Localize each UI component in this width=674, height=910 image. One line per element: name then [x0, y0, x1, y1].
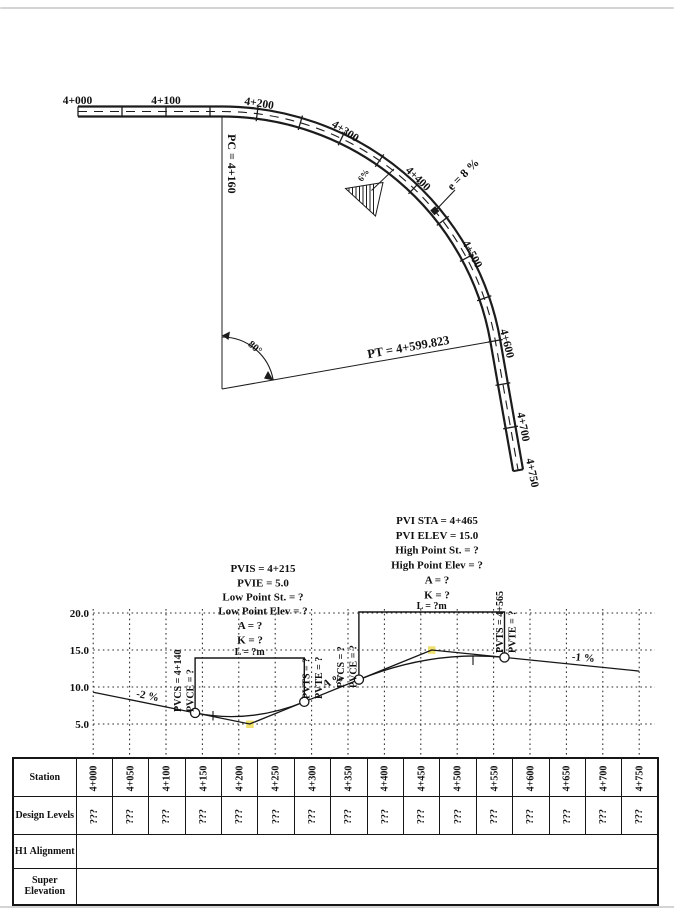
design-level-cell: ???: [404, 796, 440, 834]
road-outer-edge: [78, 107, 523, 470]
elev-tick-label: 15.0: [70, 645, 90, 657]
crest-note-line: A = ?: [425, 575, 450, 587]
station-value: 4+750: [634, 766, 645, 792]
design-level-value: ???: [307, 809, 318, 824]
angle-arrow-top: [222, 332, 230, 341]
design-level-cell: ???: [149, 796, 185, 834]
station-label: 4+100: [151, 95, 181, 107]
design-level-value: ???: [562, 809, 573, 824]
station-cell: 4+450: [404, 758, 440, 796]
alignment-and-profile-drawing: 4+000 4+100 4+200 4+300 4+400 4+500 4+60…: [0, 0, 674, 757]
row-header-design-levels: Design Levels: [13, 796, 76, 834]
pvt2-node: [500, 653, 509, 662]
table-row: Super Elevation: [13, 868, 658, 905]
sag-note-line: Low Point St. = ?: [222, 592, 303, 604]
table-row: Design Levels ??? ??? ??? ??? ??? ??? ??…: [13, 796, 658, 834]
station-cell: 4+700: [585, 758, 621, 796]
station-value: 4+350: [343, 766, 354, 792]
sag-note-line: PVIE = 5.0: [237, 578, 289, 590]
sheet-bottom-edge: [0, 906, 674, 908]
design-level-value: ???: [598, 809, 609, 824]
design-level-cell: ???: [112, 796, 148, 834]
row-header-super-elevation: Super Elevation: [13, 868, 76, 905]
design-level-value: ???: [453, 809, 464, 824]
road-end-cap: [513, 469, 523, 471]
design-level-cell: ???: [222, 796, 258, 834]
design-level-cell: ???: [585, 796, 621, 834]
crest-note-line: K = ?: [424, 590, 450, 602]
row-header-h-alignment: H1 Alignment: [13, 834, 76, 868]
station-cell: 4+400: [367, 758, 403, 796]
design-level-value: ???: [198, 809, 209, 824]
road-centerline-dashed: [78, 112, 518, 471]
plan-labels: 4+000 4+100 4+200 4+300 4+400 4+500 4+60…: [63, 95, 541, 489]
crest-note-line: PVI ELEV = 15.0: [396, 530, 479, 542]
station-cell: 4+150: [185, 758, 221, 796]
station-value: 4+600: [525, 766, 536, 792]
design-level-cell: ???: [440, 796, 476, 834]
station-label: 4+750: [523, 457, 540, 489]
design-level-value: ???: [380, 809, 391, 824]
elev-tick-label: 20.0: [70, 608, 90, 620]
design-level-value: ???: [416, 809, 427, 824]
cut-slope-symbol: [346, 169, 395, 216]
station-value: 4+250: [271, 766, 282, 792]
station-value: 4+300: [307, 766, 318, 792]
super-elevation-empty-cell: [76, 868, 658, 905]
station-cell: 4+350: [331, 758, 367, 796]
design-level-value: ???: [525, 809, 536, 824]
crest-length-label: L = ?m: [417, 601, 448, 612]
profile-elevation-axis: 20.0 15.0 10.0 5.0: [70, 608, 90, 731]
pvt2-elev-label: PVTE = ?: [508, 611, 519, 653]
pt-label: PT = 4+599.823: [366, 333, 450, 361]
design-level-value: ???: [271, 809, 282, 824]
sag-vertical-curve: [195, 702, 304, 717]
design-level-value: ???: [343, 809, 354, 824]
design-level-value: ???: [125, 809, 136, 824]
design-level-value: ???: [234, 809, 245, 824]
station-table: Station 4+000 4+050 4+100 4+150 4+200 4+…: [12, 757, 659, 906]
superelevation-leader-line: [435, 190, 455, 211]
station-value: 4+700: [598, 766, 609, 792]
sag-note-line: Low Point Elev = ?: [218, 606, 307, 618]
pvc2-elev-label: PVCE = ?: [349, 645, 360, 688]
crest-length-bracket: [359, 612, 505, 677]
design-level-cell: ???: [513, 796, 549, 834]
table-row: Station 4+000 4+050 4+100 4+150 4+200 4+…: [13, 758, 658, 796]
station-label: 4+500: [459, 239, 484, 271]
crest-note-line: PVI STA = 4+465: [396, 515, 478, 527]
central-angle-arc: [222, 337, 273, 380]
plan-view: [78, 106, 523, 471]
pvt1-station-label: PVTS = ?: [302, 658, 313, 699]
design-level-cell: ???: [185, 796, 221, 834]
station-value: 4+650: [562, 766, 573, 792]
station-cell: 4+250: [258, 758, 294, 796]
station-cell: 4+300: [294, 758, 330, 796]
station-value: 4+150: [198, 766, 209, 792]
station-value: 4+100: [161, 766, 172, 792]
design-level-value: ???: [634, 809, 645, 824]
elev-tick-label: 10.0: [70, 682, 90, 694]
station-ticks: [78, 106, 518, 429]
design-level-cell: ???: [76, 796, 112, 834]
pvc1-station-label: PVCS = 4+140: [173, 649, 184, 712]
design-level-cell: ???: [476, 796, 512, 834]
table-row: H1 Alignment: [13, 834, 658, 868]
pvt2-station-label: PVTS = 4+565: [495, 591, 506, 653]
sag-note-line: A = ?: [238, 620, 263, 632]
side-slope-label: 6%: [355, 167, 371, 183]
station-value: 4+450: [416, 766, 427, 792]
station-cell: 4+100: [149, 758, 185, 796]
crest-note-line: High Point Elev = ?: [391, 560, 483, 572]
sheet-top-edge: [0, 7, 674, 9]
pvc1-elev-label: PVCE = ?: [186, 669, 197, 712]
design-level-value: ???: [161, 809, 172, 824]
design-level-cell: ???: [367, 796, 403, 834]
design-level-cell: ???: [549, 796, 585, 834]
station-label: 4+200: [244, 96, 275, 113]
h-alignment-empty-cell: [76, 834, 658, 868]
crest-vertical-curve: [359, 656, 505, 680]
drawing-sheet: 4+000 4+100 4+200 4+300 4+400 4+500 4+60…: [0, 0, 674, 910]
station-value: 4+550: [489, 766, 500, 792]
station-cell: 4+050: [112, 758, 148, 796]
design-level-cell: ???: [294, 796, 330, 834]
station-value: 4+000: [89, 766, 100, 792]
pc-label: PC = 4+160: [225, 134, 239, 194]
design-level-value: ???: [89, 809, 100, 824]
design-level-cell: ???: [622, 796, 658, 834]
station-cell: 4+500: [440, 758, 476, 796]
sag-length-label: L = ?m: [235, 647, 266, 658]
design-level-value: ???: [489, 809, 500, 824]
design-level-cell: ???: [331, 796, 367, 834]
station-value: 4+200: [234, 766, 245, 792]
sag-length-bracket: [195, 658, 304, 710]
station-cell: 4+200: [222, 758, 258, 796]
station-label: 4+000: [63, 95, 93, 107]
station-cell: 4+650: [549, 758, 585, 796]
station-cell: 4+600: [513, 758, 549, 796]
sag-note-line: K = ?: [237, 635, 263, 647]
grade-out-label: -1 %: [571, 651, 595, 665]
road-inner-edge: [78, 117, 513, 472]
station-cell: 4+000: [76, 758, 112, 796]
sag-note-line: PVIS = 4+215: [230, 563, 296, 575]
elev-tick-label: 5.0: [75, 719, 89, 731]
station-value: 4+500: [453, 766, 464, 792]
station-cell: 4+550: [476, 758, 512, 796]
crest-note-line: High Point St. = ?: [395, 545, 479, 557]
station-value: 4+400: [380, 766, 391, 792]
row-header-station: Station: [13, 758, 76, 796]
station-value: 4+050: [125, 766, 136, 792]
superelevation-label: e = 8 %: [444, 156, 482, 194]
design-level-cell: ???: [258, 796, 294, 834]
station-cell: 4+750: [622, 758, 658, 796]
